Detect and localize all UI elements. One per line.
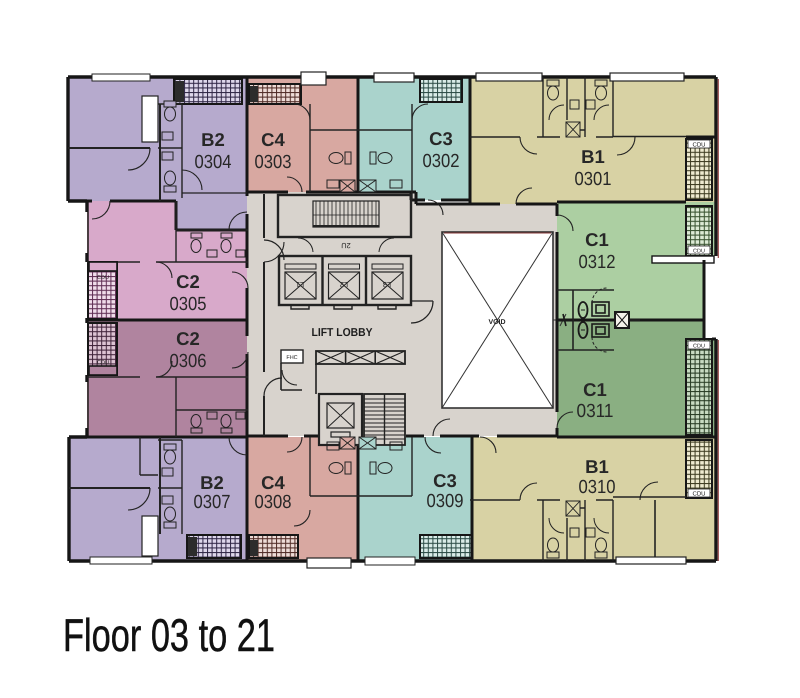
svg-text:0309: 0309 bbox=[427, 491, 464, 512]
svg-text:0307: 0307 bbox=[194, 492, 231, 513]
svg-text:0304: 0304 bbox=[195, 152, 232, 173]
svg-text:CDU: CDU bbox=[693, 249, 705, 255]
svg-text:0312: 0312 bbox=[579, 252, 616, 273]
svg-text:FHC: FHC bbox=[286, 355, 297, 361]
svg-text:B1: B1 bbox=[581, 146, 605, 167]
svg-text:C2: C2 bbox=[176, 271, 200, 292]
svg-text:C3: C3 bbox=[433, 470, 457, 491]
svg-text:2U: 2U bbox=[341, 241, 351, 250]
svg-text:0303: 0303 bbox=[255, 152, 292, 173]
svg-text:L1: L1 bbox=[296, 280, 304, 289]
svg-text:CDU: CDU bbox=[693, 142, 706, 149]
svg-text:CDU: CDU bbox=[97, 275, 109, 281]
svg-text:CDU: CDU bbox=[693, 344, 705, 350]
svg-text:B1: B1 bbox=[585, 456, 609, 477]
svg-text:C4: C4 bbox=[261, 472, 285, 493]
svg-text:C1: C1 bbox=[585, 229, 609, 250]
svg-text:C1: C1 bbox=[583, 379, 607, 400]
svg-text:LIFT LOBBY: LIFT LOBBY bbox=[312, 327, 373, 339]
svg-text:CDU: CDU bbox=[97, 360, 109, 366]
svg-text:L2: L2 bbox=[340, 280, 348, 289]
svg-text:0301: 0301 bbox=[575, 169, 612, 190]
svg-text:C3: C3 bbox=[429, 128, 453, 149]
svg-text:0308: 0308 bbox=[255, 492, 292, 513]
svg-text:B2: B2 bbox=[201, 129, 225, 150]
svg-text:C2: C2 bbox=[176, 328, 200, 349]
svg-text:0302: 0302 bbox=[423, 151, 460, 172]
svg-text:VOID: VOID bbox=[488, 319, 505, 326]
svg-text:0311: 0311 bbox=[577, 401, 614, 422]
svg-text:0305: 0305 bbox=[170, 294, 207, 315]
svg-text:L3: L3 bbox=[383, 280, 391, 289]
svg-text:CDU: CDU bbox=[693, 491, 706, 498]
svg-text:B2: B2 bbox=[200, 472, 224, 493]
svg-text:0310: 0310 bbox=[579, 477, 616, 498]
svg-text:Floor 03 to 21: Floor 03 to 21 bbox=[63, 609, 275, 661]
svg-text:C4: C4 bbox=[261, 129, 285, 150]
svg-text:0306: 0306 bbox=[170, 351, 207, 372]
